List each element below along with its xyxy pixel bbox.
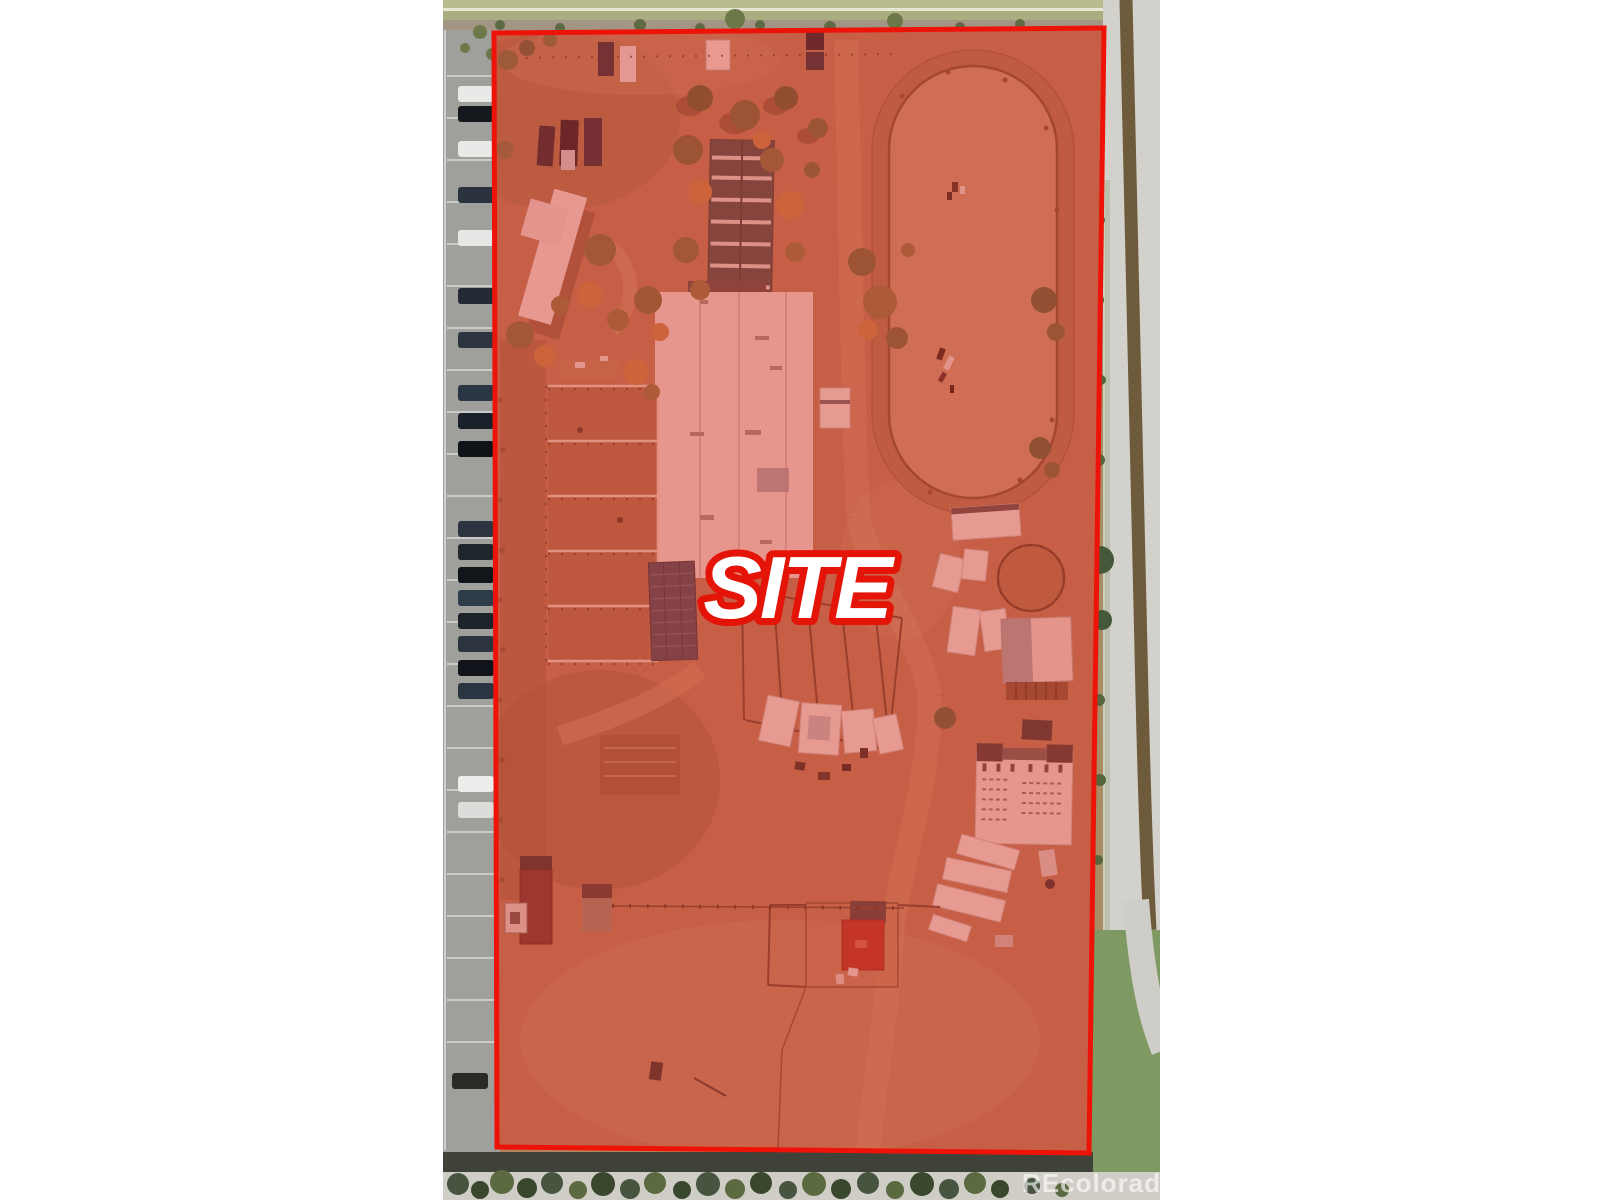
watermark: REcolorado: [1022, 1168, 1160, 1198]
site-label-text: SITE: [703, 538, 895, 637]
aerial-photo: SITE SITE SITE REcolorado: [443, 0, 1160, 1200]
parking-lot: [443, 25, 500, 1152]
listing-photo-canvas: SITE SITE SITE REcolorado: [0, 0, 1600, 1200]
site-label: SITE SITE SITE: [703, 538, 899, 642]
